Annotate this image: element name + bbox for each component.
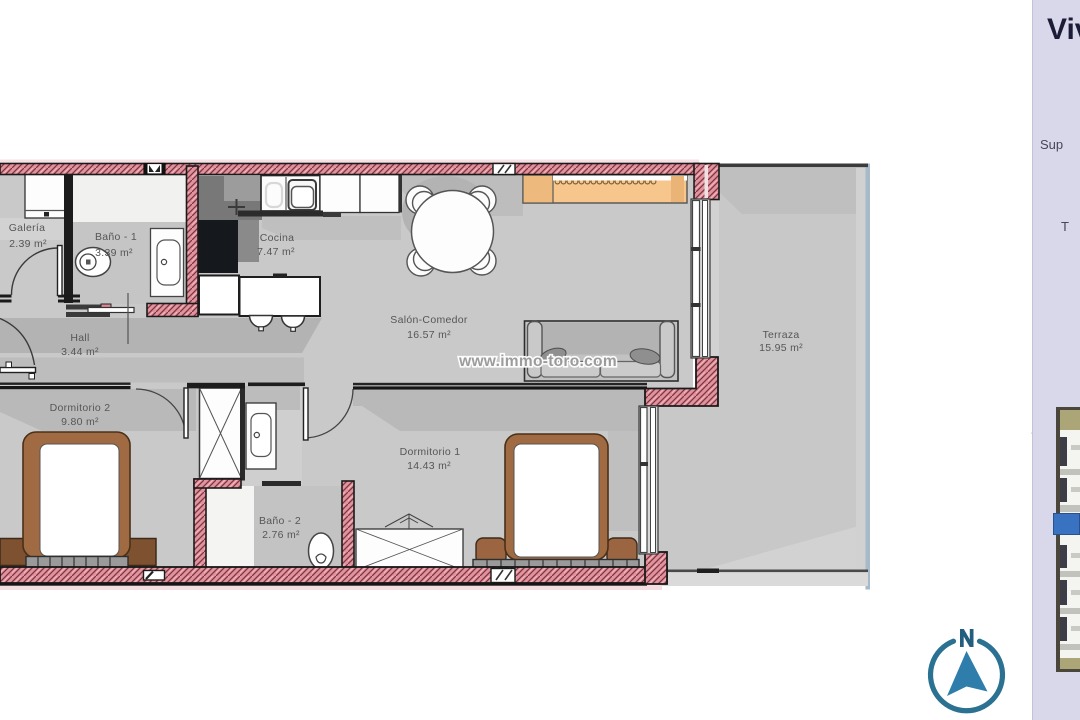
svg-text:Cocina: Cocina (260, 232, 294, 244)
svg-text:www.immo-toro.com: www.immo-toro.com (458, 353, 617, 370)
svg-text:3.44 m²: 3.44 m² (61, 346, 99, 358)
svg-text:3.39 m²: 3.39 m² (95, 247, 133, 259)
svg-text:Salón-Comedor: Salón-Comedor (390, 314, 468, 326)
svg-text:16.57 m²: 16.57 m² (407, 329, 451, 341)
svg-text:2.76 m²: 2.76 m² (262, 529, 300, 541)
svg-text:Terraza: Terraza (762, 329, 799, 341)
svg-text:Dormitorio 1: Dormitorio 1 (400, 446, 461, 458)
svg-text:Baño - 2: Baño - 2 (259, 515, 301, 527)
svg-text:9.80 m²: 9.80 m² (61, 416, 99, 428)
svg-text:Baño - 1: Baño - 1 (95, 231, 137, 243)
svg-text:Hall: Hall (70, 332, 89, 344)
svg-text:Dormitorio 2: Dormitorio 2 (50, 402, 111, 414)
svg-text:2.39 m²: 2.39 m² (9, 238, 47, 250)
svg-text:14.43 m²: 14.43 m² (407, 460, 451, 472)
svg-text:15.95 m²: 15.95 m² (759, 342, 803, 354)
svg-text:7.47 m²: 7.47 m² (257, 246, 295, 258)
svg-text:Galería: Galería (9, 222, 46, 234)
